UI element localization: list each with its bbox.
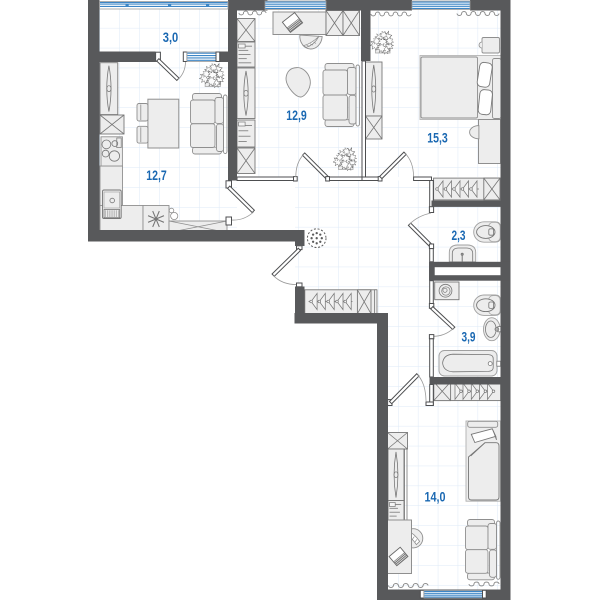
svg-text:3,0: 3,0 [163,30,179,46]
svg-text:2,3: 2,3 [452,228,466,244]
svg-text:12,7: 12,7 [146,168,167,184]
svg-text:15,3: 15,3 [427,131,448,147]
svg-text:14,0: 14,0 [425,490,446,506]
svg-text:3,9: 3,9 [462,330,476,346]
svg-text:12,9: 12,9 [286,108,307,124]
